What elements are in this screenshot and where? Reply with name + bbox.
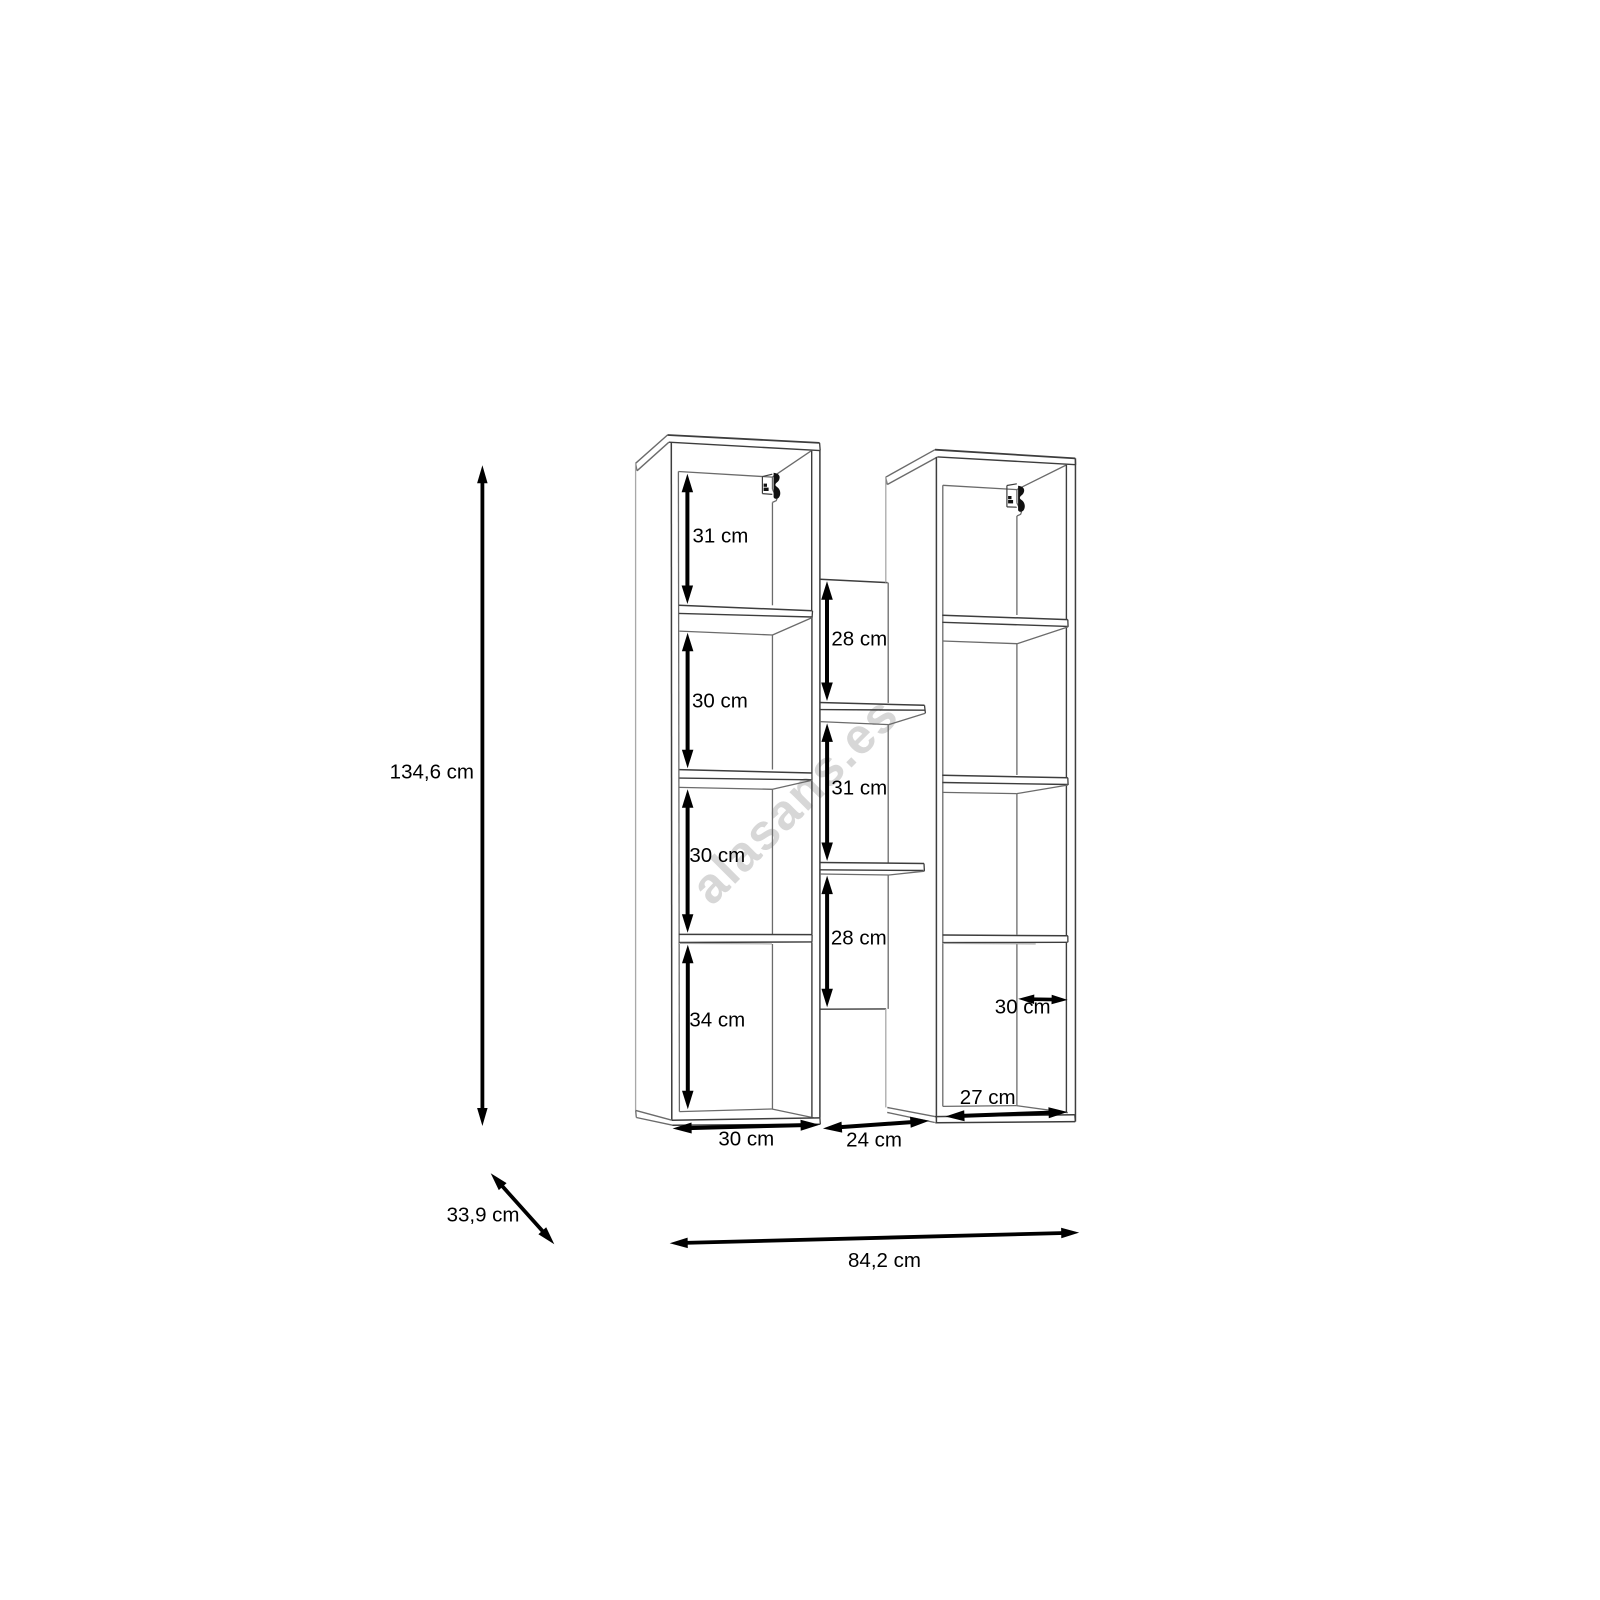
svg-text:27 cm: 27 cm <box>960 1086 1016 1109</box>
svg-text:31 cm: 31 cm <box>693 525 749 548</box>
svg-text:24 cm: 24 cm <box>846 1129 902 1152</box>
svg-text:134,6 cm: 134,6 cm <box>390 761 474 784</box>
svg-text:30 cm: 30 cm <box>995 996 1051 1019</box>
svg-text:28 cm: 28 cm <box>831 927 887 950</box>
svg-text:30 cm: 30 cm <box>692 690 748 713</box>
svg-text:33,9 cm: 33,9 cm <box>447 1204 520 1227</box>
svg-text:31 cm: 31 cm <box>831 777 887 800</box>
svg-text:34 cm: 34 cm <box>689 1009 745 1032</box>
svg-text:30 cm: 30 cm <box>718 1128 774 1151</box>
svg-text:30 cm: 30 cm <box>689 844 745 867</box>
svg-text:84,2 cm: 84,2 cm <box>848 1249 921 1272</box>
svg-text:28 cm: 28 cm <box>831 628 887 651</box>
